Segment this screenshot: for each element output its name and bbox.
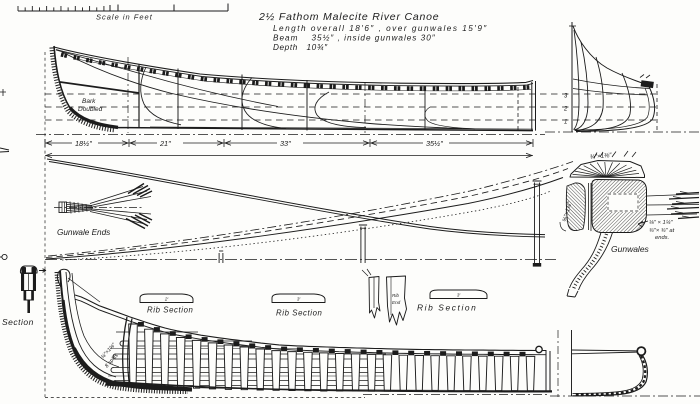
svg-text:Beam 35½″ , inside gunwales: Beam 35½″ , inside gunwales 30″ [273, 34, 436, 43]
svg-text:Length overall 18′6″ , over gu: Length overall 18′6″ , over gunwales 15′… [273, 24, 488, 33]
svg-text:Rib Section: Rib Section [147, 306, 193, 315]
svg-text:Gunwale Ends: Gunwale Ends [57, 228, 110, 237]
svg-text:Bark: Bark [82, 98, 96, 105]
svg-text:Depth 10¾″: Depth 10¾″ [273, 43, 328, 52]
svg-text:3′: 3′ [457, 292, 461, 297]
svg-text:Scale in Feet: Scale in Feet [96, 13, 153, 22]
svg-text:21″: 21″ [159, 139, 171, 148]
svg-text:1: 1 [564, 120, 567, 126]
svg-text:Rib Section: Rib Section [276, 309, 322, 318]
svg-text:End: End [392, 300, 401, 305]
svg-text:Doubled: Doubled [78, 106, 103, 113]
svg-text:⅛″ × 1¼″: ⅛″ × 1¼″ [649, 220, 674, 226]
svg-text:¾″× ¾″ at: ¾″× ¾″ at [649, 228, 675, 234]
svg-text:35½″: 35½″ [426, 139, 443, 148]
svg-text:2′: 2′ [164, 296, 169, 301]
svg-text:18½″: 18½″ [75, 139, 92, 148]
svg-text:ends.: ends. [655, 235, 669, 241]
svg-text:2: 2 [563, 107, 568, 113]
svg-text:Gunwales: Gunwales [611, 244, 650, 254]
svg-text:33″: 33″ [280, 139, 291, 148]
svg-text:2½ Fathom Malecite River Canoe: 2½ Fathom Malecite River Canoe [258, 11, 439, 23]
svg-text:3′: 3′ [297, 296, 301, 301]
svg-text:Section: Section [2, 317, 34, 327]
svg-text:Rib Section: Rib Section [417, 303, 477, 313]
svg-text:Rib: Rib [392, 293, 399, 298]
